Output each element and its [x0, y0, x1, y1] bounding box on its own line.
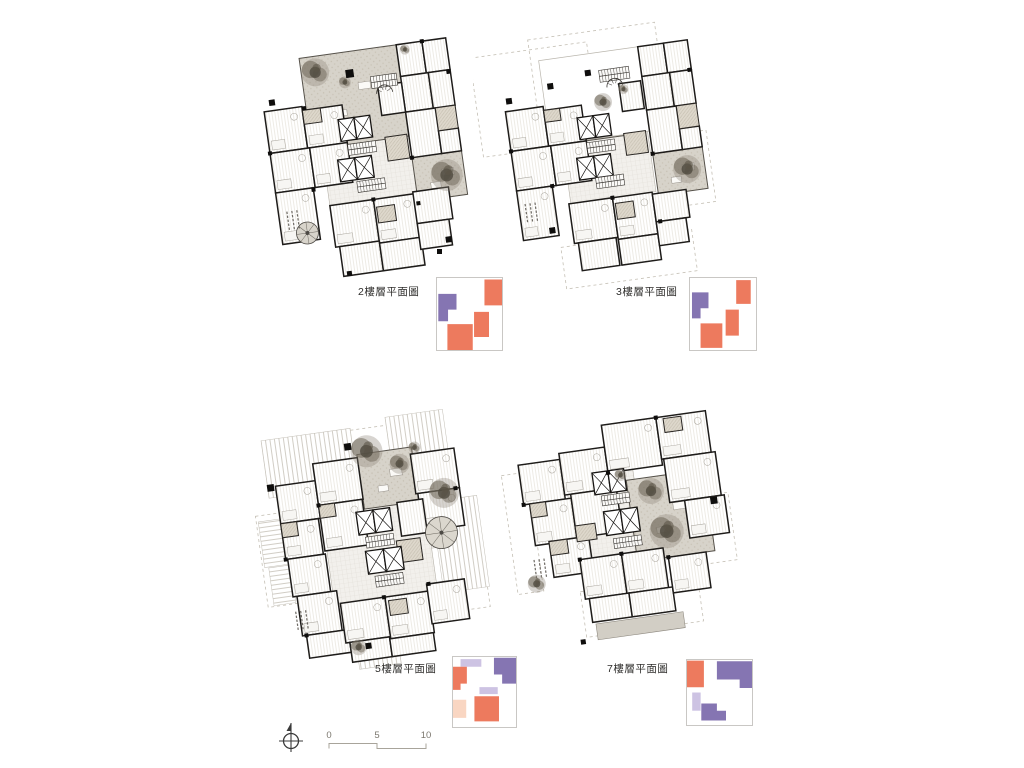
- unit-key-3f: [689, 277, 757, 351]
- north-arrow-flag: [287, 723, 292, 731]
- scale-tick: 5: [374, 730, 379, 741]
- floor-label-5f: 5樓層平面圖: [375, 661, 436, 676]
- drawing-sheet: 2樓層平面圖 3樓層平面圖 5樓層平面圖 7樓層平面圖 0510: [0, 0, 1024, 768]
- scale-tick: 10: [421, 730, 432, 741]
- floor-plan-7f: [493, 388, 758, 658]
- scale-tick: 0: [326, 730, 331, 741]
- unit-key-7f: [686, 659, 753, 726]
- column-mark: [437, 249, 442, 254]
- unit-key-5f: [452, 656, 517, 728]
- scale-bar: 0510: [320, 726, 435, 752]
- floor-label-3f: 3樓層平面圖: [616, 284, 677, 299]
- floor-label-7f: 7樓層平面圖: [607, 661, 668, 676]
- floor-plan-5f: [235, 398, 505, 698]
- floor-plan-2f: [232, 10, 502, 310]
- unit-key-2f: [436, 277, 503, 351]
- floor-plan-3f: [473, 12, 743, 302]
- floor-label-2f: 2樓層平面圖: [358, 284, 419, 299]
- north-arrow-icon: [277, 716, 307, 758]
